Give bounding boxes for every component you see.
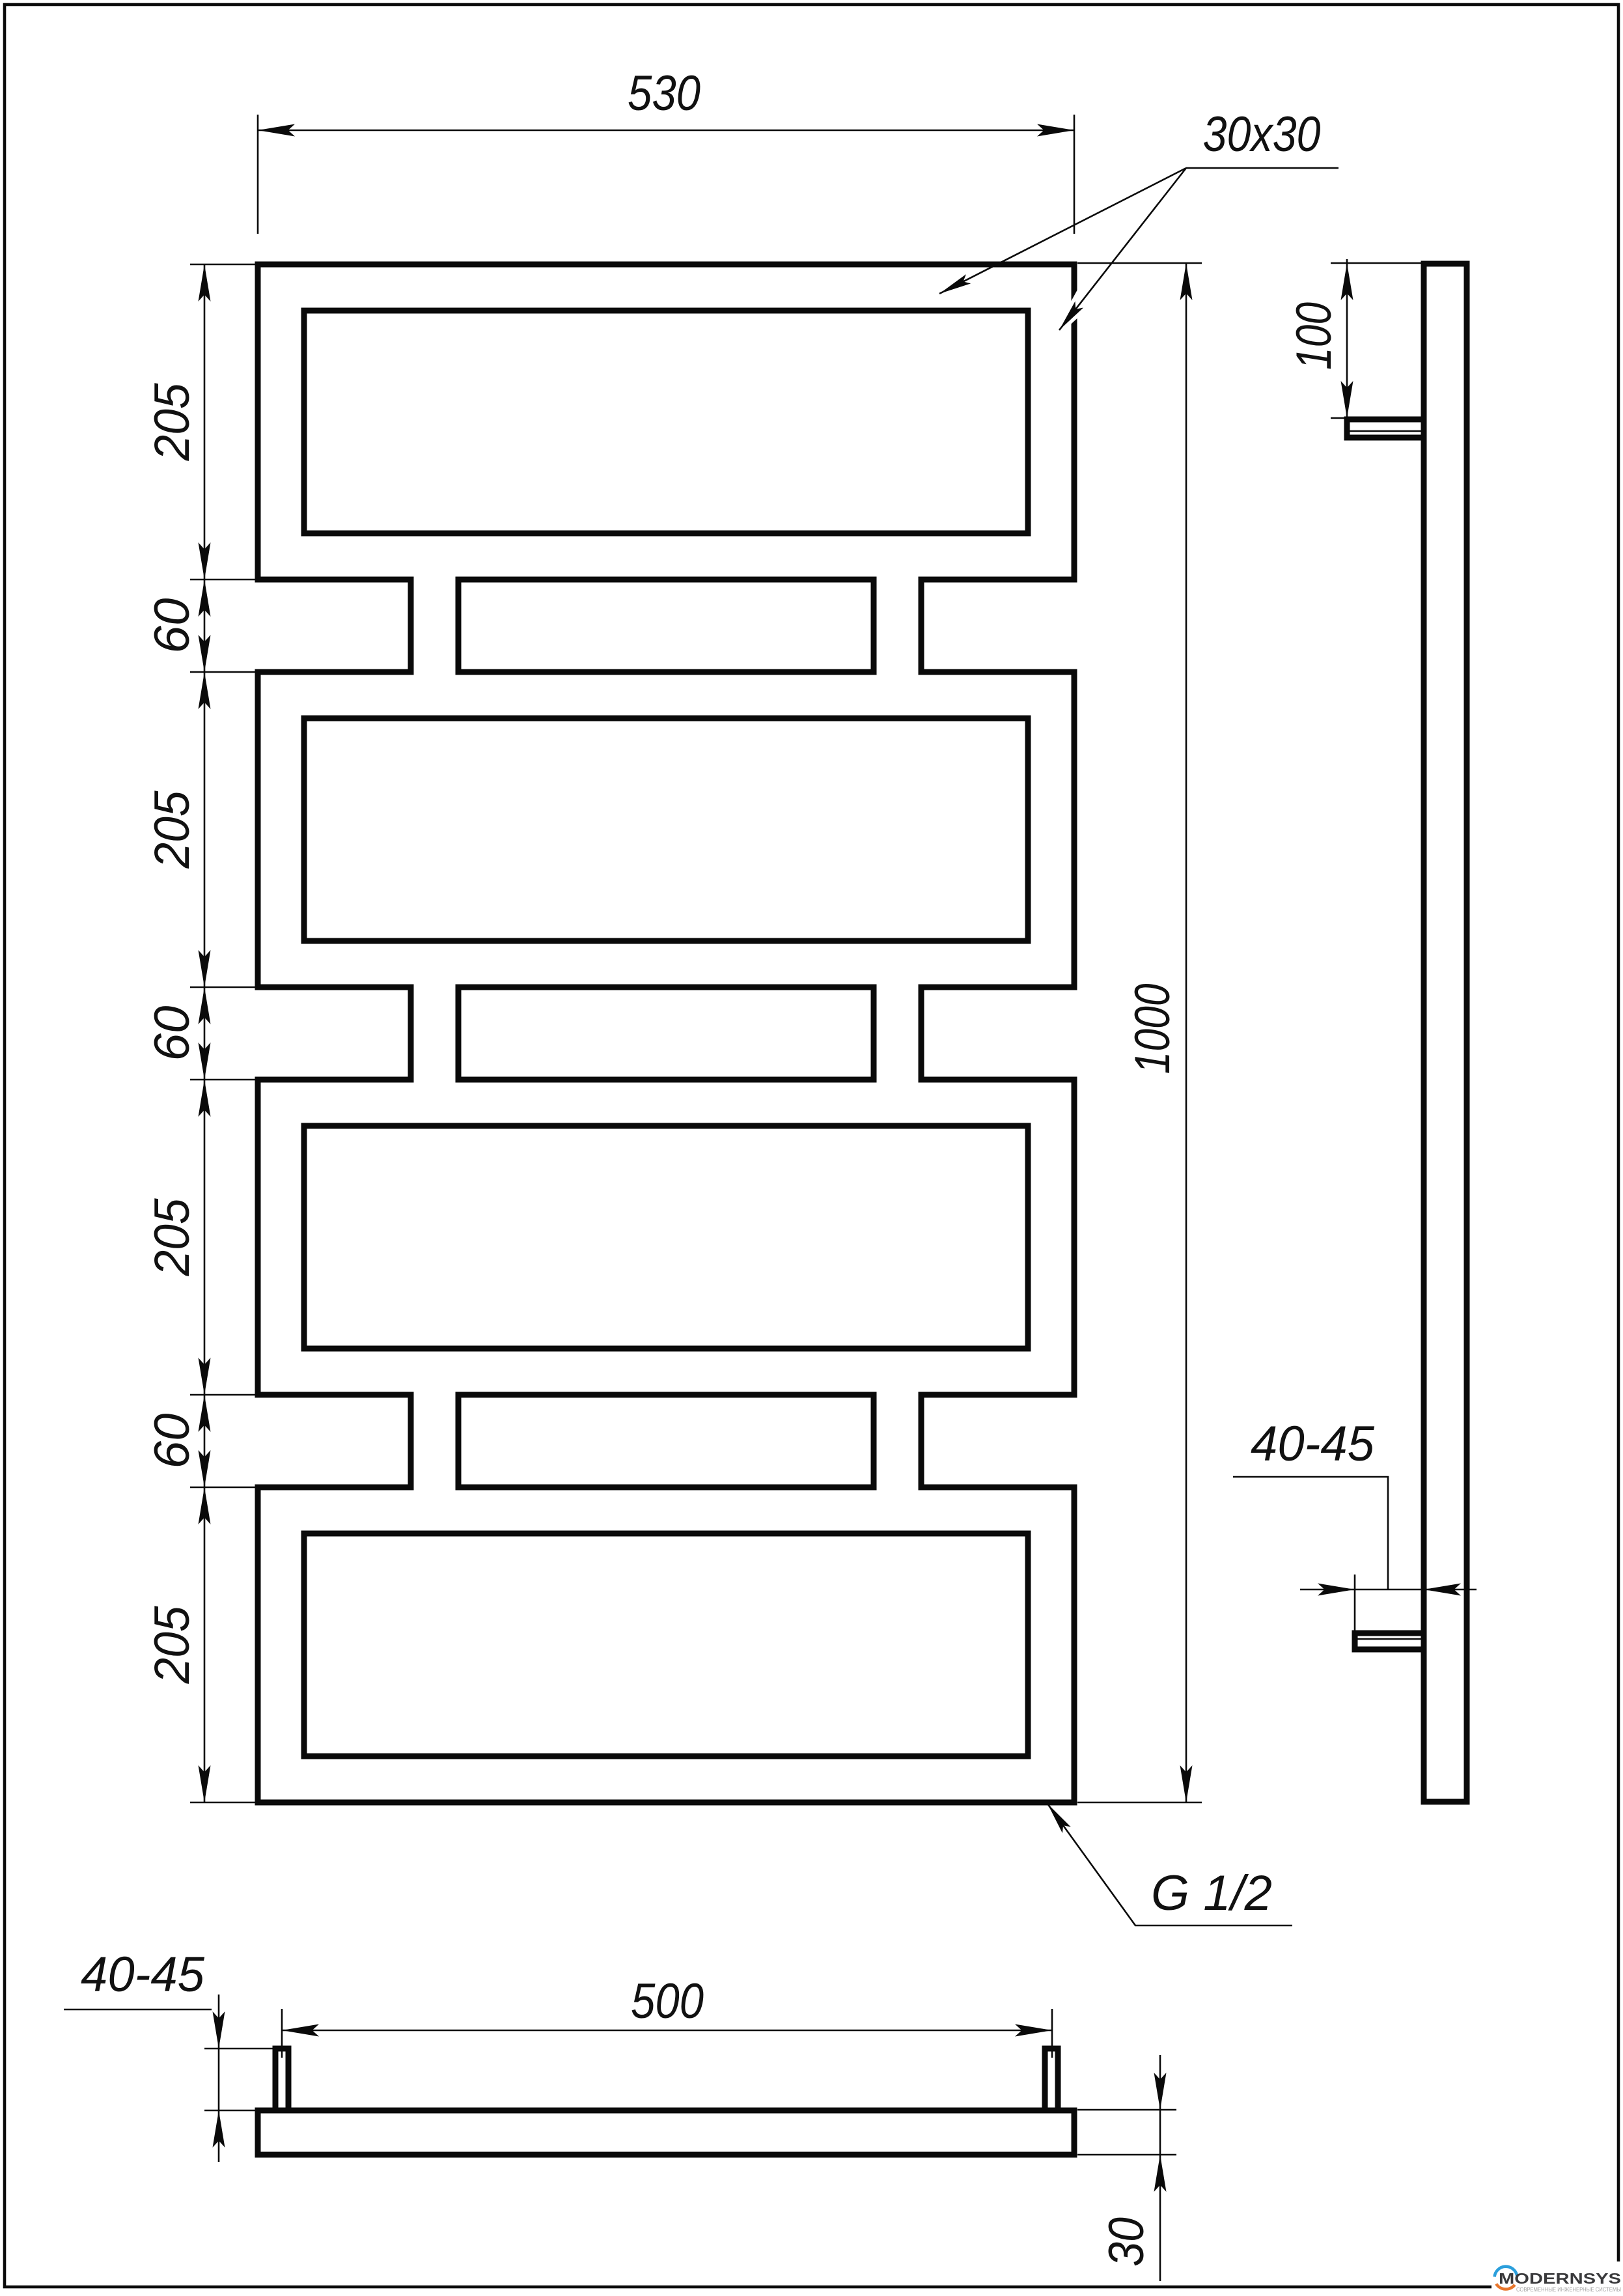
svg-text:40-45: 40-45 (81, 1947, 205, 2002)
svg-text:G 1/2: G 1/2 (1151, 1866, 1272, 1921)
svg-text:500: 500 (631, 1974, 704, 2029)
svg-text:60: 60 (145, 1414, 200, 1469)
svg-text:530: 530 (628, 66, 701, 121)
svg-text:30: 30 (1099, 2217, 1154, 2267)
svg-text:30x30: 30x30 (1203, 107, 1321, 162)
svg-text:СОВРЕМЕННЫЕ ИНЖЕНЕРНЫЕ СИСТЕМЫ: СОВРЕМЕННЫЕ ИНЖЕНЕРНЫЕ СИСТЕМЫ (1516, 2286, 1621, 2293)
svg-text:100: 100 (1286, 302, 1342, 370)
svg-text:MODERNSYS: MODERNSYS (1499, 2270, 1621, 2287)
svg-text:40-45: 40-45 (1251, 1416, 1375, 1472)
svg-text:205: 205 (145, 1198, 200, 1277)
svg-text:205: 205 (145, 383, 200, 462)
svg-text:205: 205 (145, 1606, 200, 1685)
svg-text:60: 60 (145, 598, 200, 654)
svg-text:205: 205 (145, 791, 200, 869)
svg-text:1000: 1000 (1125, 984, 1180, 1074)
svg-text:60: 60 (145, 1006, 200, 1061)
